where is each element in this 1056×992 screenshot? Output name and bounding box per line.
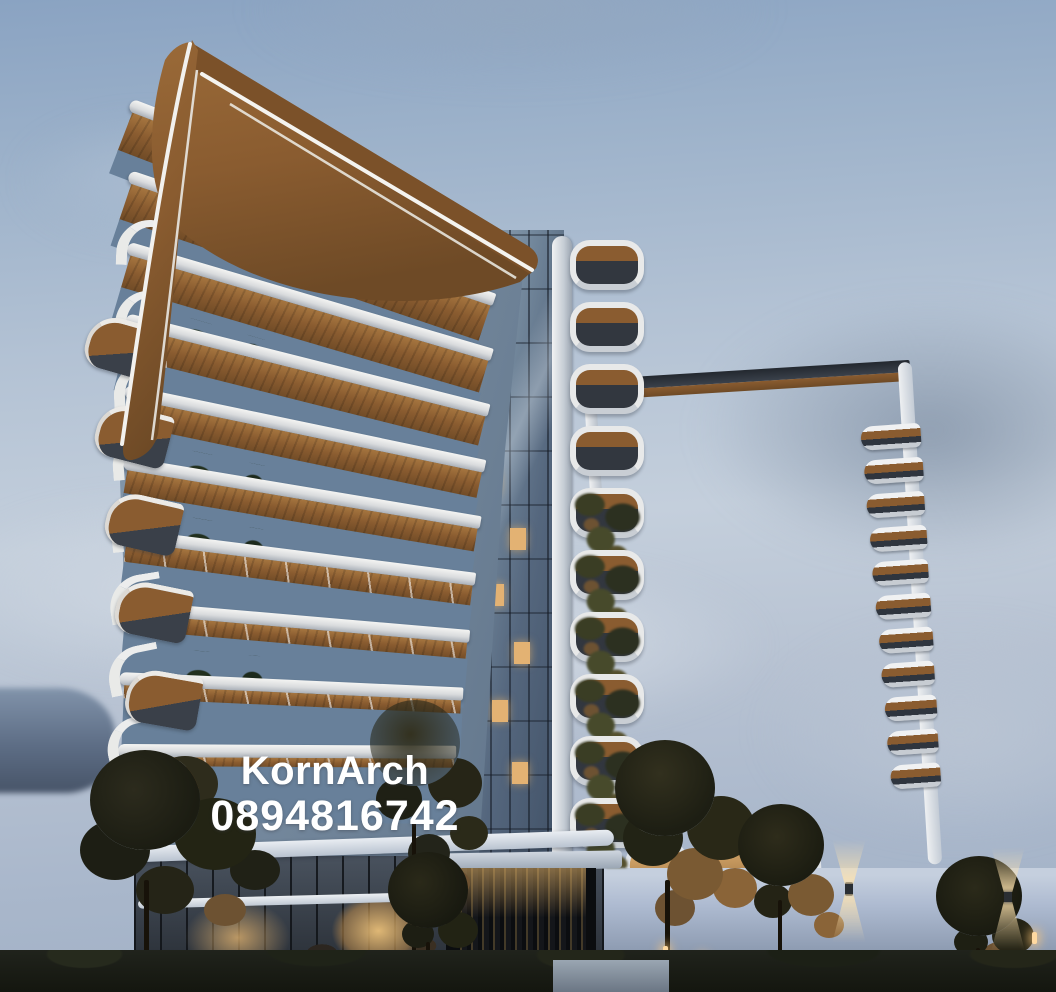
hedge (0, 950, 1056, 992)
wall-sconce (1004, 890, 1012, 904)
watermark-phone: 0894816742 (140, 793, 530, 839)
roof-blade-edge (80, 20, 260, 490)
driveway-paving (553, 960, 669, 992)
bollard-light (1032, 932, 1037, 944)
wall-sconce (845, 882, 853, 896)
architectural-render-canvas: KornArch 0894816742 (0, 0, 1056, 992)
watermark: KornArch 0894816742 (140, 750, 530, 840)
watermark-brand: KornArch (140, 750, 530, 793)
